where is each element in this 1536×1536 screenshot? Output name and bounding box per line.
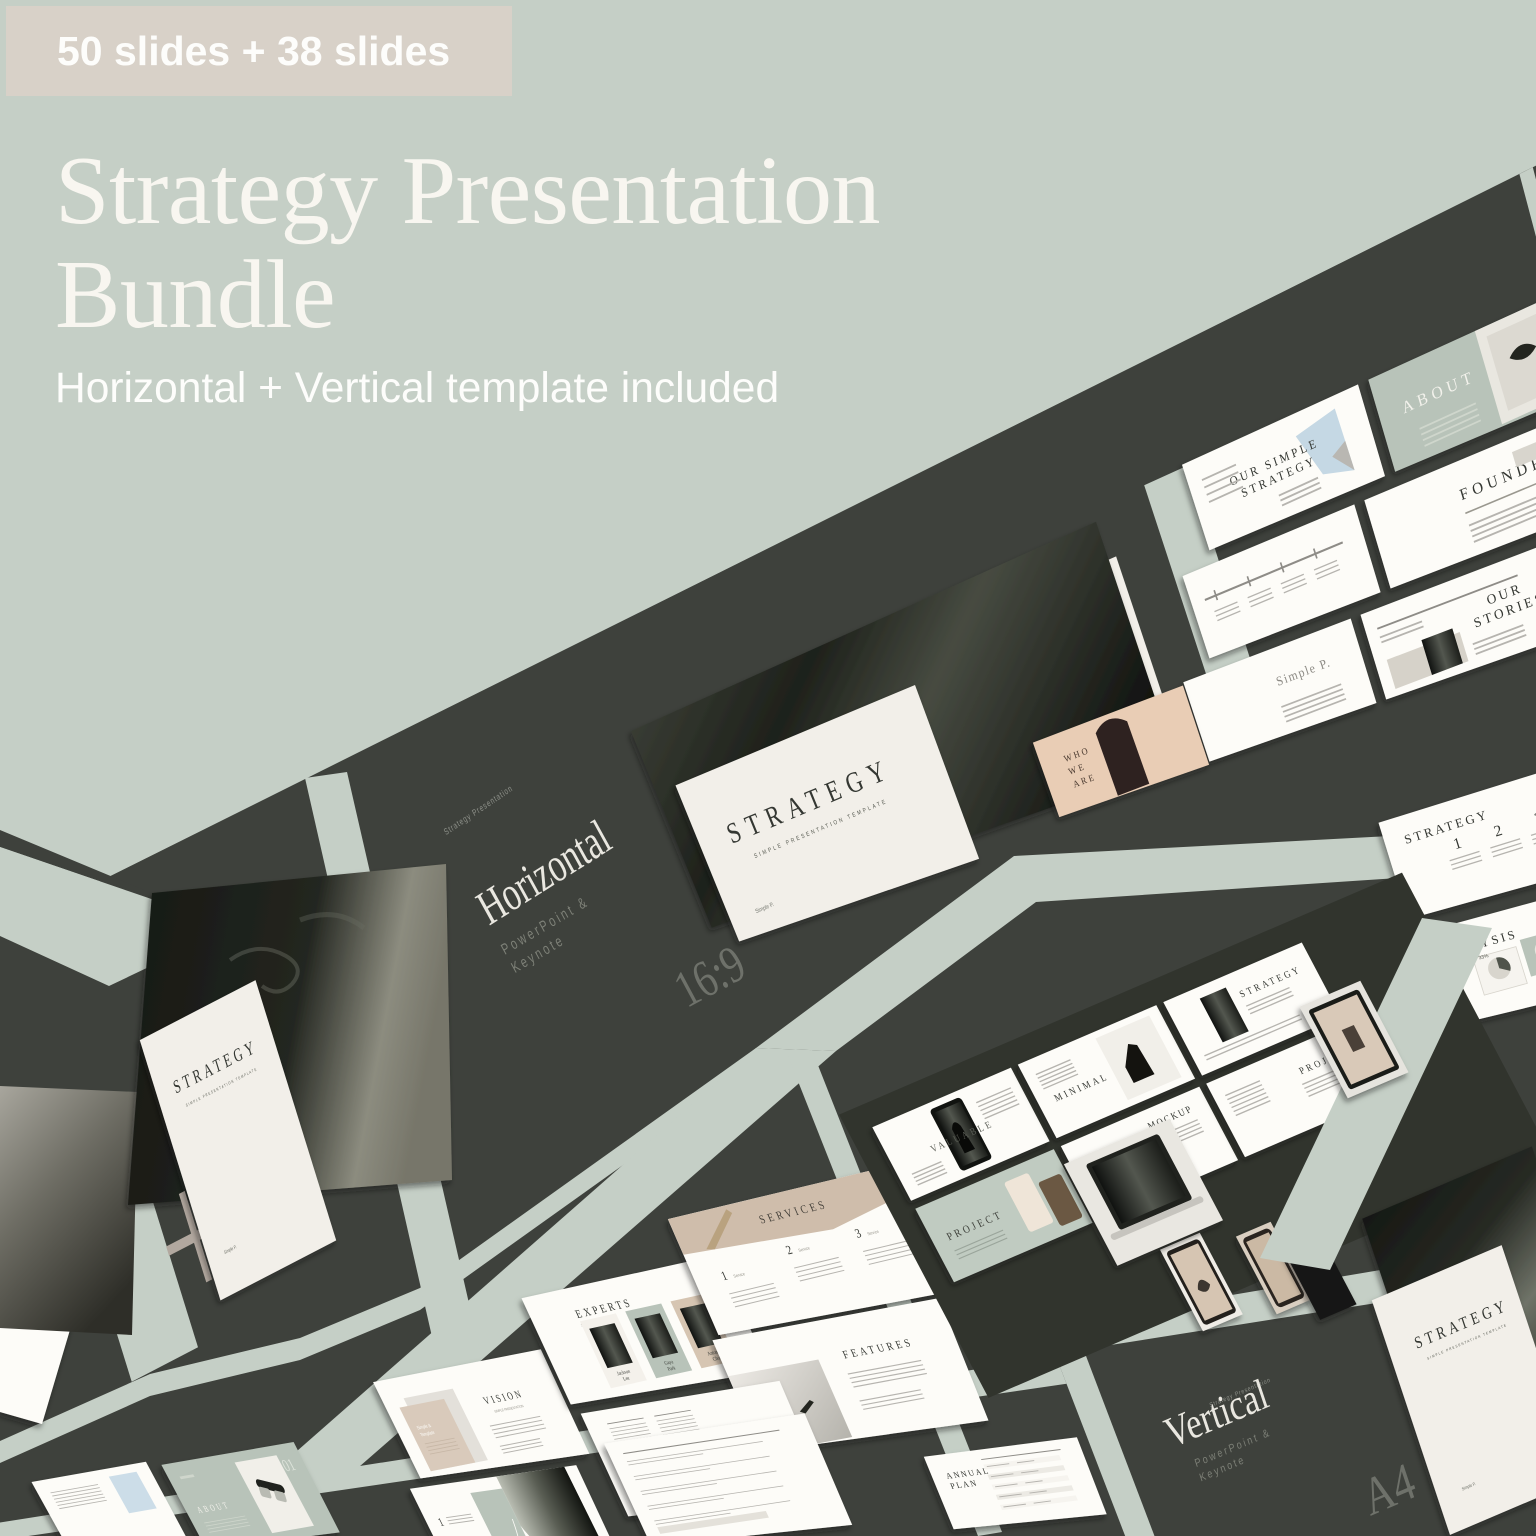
svg-text:50 slides + 38 slides: 50 slides + 38 slides [57, 28, 450, 74]
svg-text:Strategy Presentation: Strategy Presentation [55, 137, 880, 245]
svg-text:Horizontal + Vertical template: Horizontal + Vertical template included [55, 365, 779, 412]
svg-text:Bundle: Bundle [55, 241, 335, 349]
